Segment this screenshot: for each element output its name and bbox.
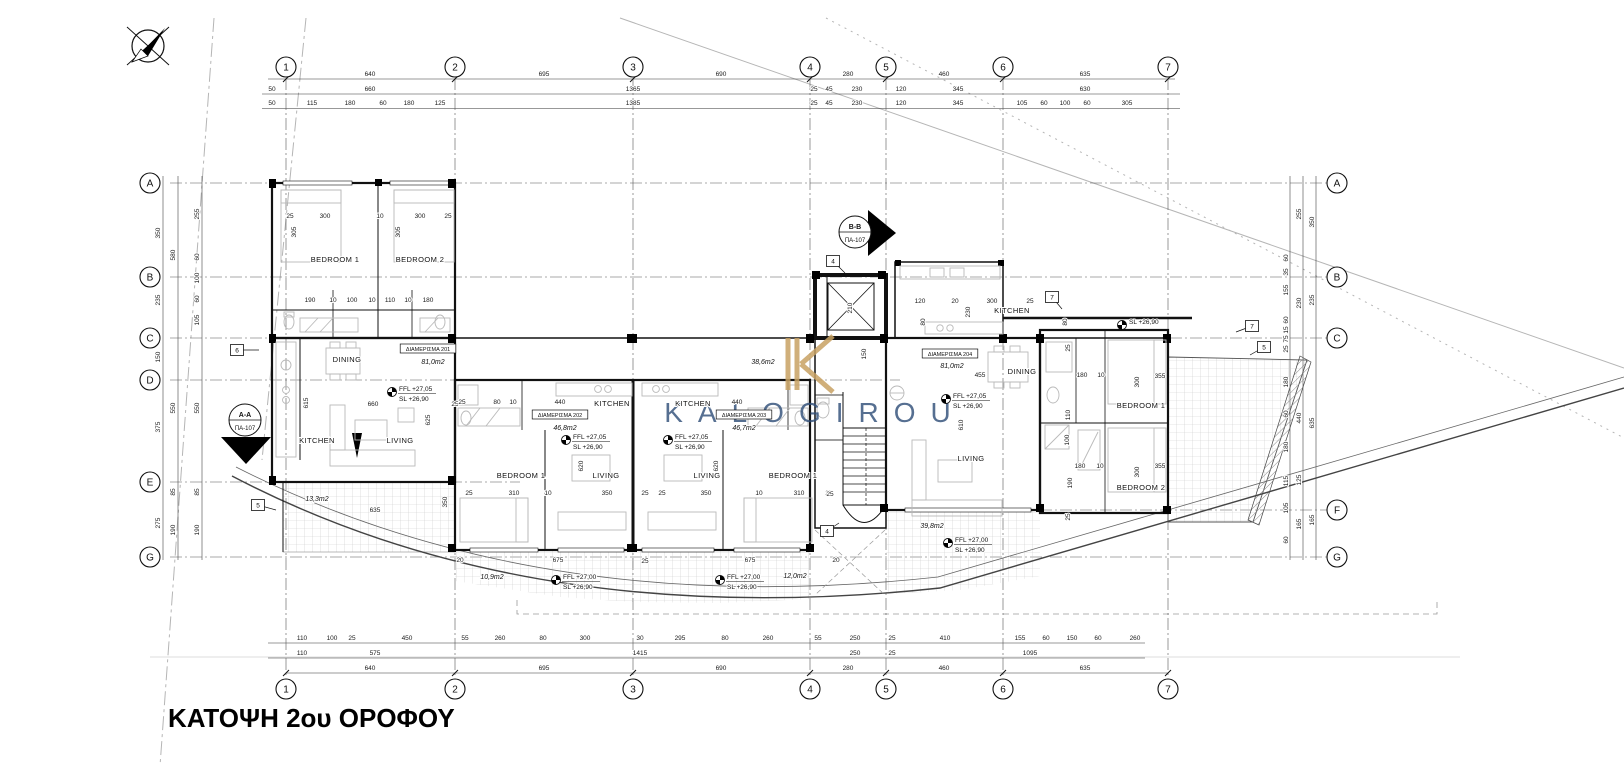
dim-label: 305 bbox=[1122, 100, 1133, 107]
level-symbol-icon bbox=[946, 395, 951, 400]
dim-label: 100 bbox=[1060, 100, 1071, 107]
dim-label: 110 bbox=[297, 650, 308, 657]
dim-label: 125 bbox=[1296, 474, 1303, 485]
dim-label: 410 bbox=[940, 635, 951, 642]
dim-label: 260 bbox=[763, 635, 774, 642]
floor-plan-canvas: 11223344556677ABCDEGABCFG bbox=[0, 0, 1624, 766]
level-text: SL +26,90 bbox=[573, 444, 603, 451]
dim-label: 20 bbox=[832, 557, 840, 564]
dim-label: 25 bbox=[1283, 345, 1290, 353]
dim-label: 45 bbox=[825, 86, 833, 93]
dim-label: 660 bbox=[365, 86, 376, 93]
dim-label: 120 bbox=[915, 298, 926, 305]
drawing-title: ΚΑΤΟΨΗ 2ου ΟΡΟΦΟΥ bbox=[168, 703, 455, 733]
dim-label: 85 bbox=[194, 488, 201, 496]
dim-label: 25 bbox=[348, 635, 356, 642]
dim-label: 180 bbox=[1283, 376, 1290, 387]
dim-label: 230 bbox=[965, 306, 972, 317]
level-text: FFL +27,00 bbox=[563, 574, 597, 581]
dim-label: 345 bbox=[953, 100, 964, 107]
dim-label: 690 bbox=[716, 71, 727, 78]
dim-label: 120 bbox=[896, 86, 907, 93]
dim-label: 80 bbox=[539, 635, 547, 642]
dim-label: 60 bbox=[194, 295, 201, 303]
dim-label: 640 bbox=[365, 665, 376, 672]
dim-label: 50 bbox=[268, 86, 276, 93]
level-text: SL +26,90 bbox=[1129, 319, 1159, 326]
room-label: BEDROOM 1 bbox=[497, 471, 546, 480]
dim-label: 690 bbox=[716, 665, 727, 672]
dim-label: 20 bbox=[951, 298, 959, 305]
dim-label: 575 bbox=[370, 650, 381, 657]
level-text: SL +26,90 bbox=[675, 444, 705, 451]
dim-label: 100 bbox=[1064, 434, 1071, 445]
level-symbol-icon bbox=[664, 440, 669, 445]
grid-bubble-label: 2 bbox=[452, 685, 458, 696]
dim-label: 110 bbox=[1065, 409, 1072, 420]
dim-label: 250 bbox=[850, 650, 861, 657]
dim-label: 255 bbox=[194, 208, 201, 219]
keynote-number: 6 bbox=[235, 348, 239, 355]
dim-label: 10 bbox=[329, 297, 337, 304]
dim-label: 355 bbox=[1155, 373, 1166, 380]
dim-label: 355 bbox=[1155, 463, 1166, 470]
keynote-number: 5 bbox=[1262, 345, 1266, 352]
dim-label: 455 bbox=[975, 372, 986, 379]
north-arrow-icon bbox=[127, 27, 169, 65]
dim-label: 260 bbox=[495, 635, 506, 642]
dim-label: 10 bbox=[368, 297, 376, 304]
room-label: LIVING bbox=[694, 471, 721, 480]
dim-label: 350 bbox=[155, 227, 162, 238]
dim-label: 450 bbox=[402, 635, 413, 642]
level-symbol-icon bbox=[1118, 325, 1123, 330]
dim-label: 55 bbox=[814, 635, 822, 642]
dim-label: 110 bbox=[385, 297, 396, 304]
dim-label: 235 bbox=[155, 294, 162, 305]
dim-label: 350 bbox=[1309, 216, 1316, 227]
dim-label: 460 bbox=[939, 71, 950, 78]
room-label: DINING bbox=[1008, 367, 1037, 376]
dim-label: 350 bbox=[701, 490, 712, 497]
level-symbol-icon bbox=[392, 388, 397, 393]
dim-label: 10 bbox=[544, 490, 552, 497]
dim-label: 165 bbox=[1309, 514, 1316, 525]
dim-label: 85 bbox=[170, 488, 177, 496]
dim-label: 630 bbox=[1080, 86, 1091, 93]
dim-label: 695 bbox=[539, 665, 550, 672]
dim-label: 180 bbox=[1075, 463, 1086, 470]
room-label: KITCHEN bbox=[594, 399, 630, 408]
dim-label: 640 bbox=[365, 71, 376, 78]
dim-label: 60 bbox=[194, 253, 201, 261]
grid-bubble-label: 1 bbox=[283, 685, 289, 696]
keynote-number: 7 bbox=[1250, 324, 1254, 331]
dim-label: 100 bbox=[347, 297, 358, 304]
level-text: FFL +27,00 bbox=[727, 574, 761, 581]
dim-label: 300 bbox=[320, 213, 331, 220]
dim-label: 15 bbox=[1283, 326, 1290, 334]
apartment-area: 81,0m2 bbox=[421, 359, 444, 366]
dim-label: 155 bbox=[1015, 635, 1026, 642]
svg-text:A-A: A-A bbox=[239, 412, 251, 419]
dim-label: 305 bbox=[395, 226, 402, 237]
dim-label: 180 bbox=[423, 297, 434, 304]
dim-label: 260 bbox=[1130, 635, 1141, 642]
grid-bubble-label: A bbox=[1334, 179, 1341, 190]
dim-label: 120 bbox=[896, 100, 907, 107]
dim-label: 610 bbox=[958, 419, 965, 430]
grid-bubble-label: 2 bbox=[452, 63, 458, 74]
dim-label: 25 bbox=[641, 558, 649, 565]
level-text: SL +26,90 bbox=[563, 584, 593, 591]
dim-label: 230 bbox=[852, 100, 863, 107]
dim-label: 25 bbox=[888, 635, 896, 642]
room-label: BEDROOM 2 bbox=[1117, 483, 1166, 492]
section-marker-bb: B-B ΠΑ-107 bbox=[839, 210, 896, 256]
dim-label: 310 bbox=[794, 490, 805, 497]
dim-label: 310 bbox=[509, 490, 520, 497]
dim-label: 10 bbox=[755, 490, 763, 497]
grid-bubble-label: 7 bbox=[1165, 63, 1171, 74]
area-label: 38,6m2 bbox=[751, 359, 774, 366]
dim-label: 105 bbox=[194, 314, 201, 325]
grid-bubble-label: B bbox=[147, 273, 154, 284]
dim-label: 620 bbox=[713, 460, 720, 471]
dim-label: 350 bbox=[442, 496, 449, 507]
dim-label: 295 bbox=[675, 635, 686, 642]
dim-label: 30 bbox=[636, 635, 644, 642]
dim-label: 275 bbox=[155, 517, 162, 528]
dim-label: 190 bbox=[170, 524, 177, 535]
area-label: 10,9m2 bbox=[480, 574, 503, 581]
svg-text:B-B: B-B bbox=[849, 224, 861, 231]
dim-label: 80 bbox=[1062, 318, 1069, 326]
dim-label: 280 bbox=[843, 71, 854, 78]
dim-label: 60 bbox=[1283, 410, 1290, 418]
dim-label: 675 bbox=[553, 557, 564, 564]
dim-label: 60 bbox=[1040, 100, 1048, 107]
svg-text:ΠΑ-107: ΠΑ-107 bbox=[845, 238, 866, 244]
level-text: SL +26,90 bbox=[955, 547, 985, 554]
grid-bubble-label: 4 bbox=[807, 685, 813, 696]
floor-plan-drawing: 11223344556677ABCDEGABCFG bbox=[0, 0, 1624, 766]
dim-label: 350 bbox=[602, 490, 613, 497]
room-label: LIVING bbox=[958, 454, 985, 463]
dim-label: 440 bbox=[1296, 412, 1303, 423]
keynote-number: 5 bbox=[256, 503, 260, 510]
dim-label: 300 bbox=[987, 298, 998, 305]
dim-label: 440 bbox=[555, 399, 566, 406]
dim-label: 60 bbox=[379, 100, 387, 107]
dim-label: 75 bbox=[1283, 335, 1290, 343]
grid-bubble-label: D bbox=[146, 376, 153, 387]
level-text: SL +26,90 bbox=[727, 584, 757, 591]
room-label: KITCHEN bbox=[675, 399, 711, 408]
dim-label: 235 bbox=[1309, 294, 1316, 305]
dim-label: 115 bbox=[307, 100, 318, 107]
dim-label: 695 bbox=[539, 71, 550, 78]
apartment-area: 81,0m2 bbox=[940, 363, 963, 370]
dim-label: 180 bbox=[404, 100, 415, 107]
dim-label: 115 bbox=[1283, 475, 1290, 486]
dim-label: 110 bbox=[297, 635, 308, 642]
dim-label: 25 bbox=[458, 399, 466, 406]
dim-label: 20 bbox=[456, 557, 464, 564]
dim-label: 210 bbox=[847, 302, 854, 313]
apartment-tag: ΔΙΑΜΕΡΙΣΜΑ 202 bbox=[538, 413, 582, 419]
grid-bubble-label: E bbox=[147, 478, 154, 489]
dim-label: 440 bbox=[732, 399, 743, 406]
level-text: FFL +27,05 bbox=[573, 434, 607, 441]
dim-label: 50 bbox=[268, 100, 276, 107]
area-label: 13,3m2 bbox=[305, 496, 328, 503]
dim-label: 255 bbox=[1296, 208, 1303, 219]
level-symbol-icon bbox=[1122, 321, 1127, 326]
area-label: 12,0m2 bbox=[783, 573, 806, 580]
dim-label: 150 bbox=[861, 348, 868, 359]
grid-bubble-label: C bbox=[1333, 334, 1340, 345]
dim-label: 155 bbox=[1283, 284, 1290, 295]
dim-label: 180 bbox=[1283, 441, 1290, 452]
dim-label: 190 bbox=[305, 297, 316, 304]
dim-label: 80 bbox=[721, 635, 729, 642]
dim-label: 635 bbox=[1309, 417, 1316, 428]
dim-label: 625 bbox=[425, 414, 432, 425]
dim-label: 580 bbox=[170, 249, 177, 260]
dim-label: 10 bbox=[1096, 463, 1104, 470]
level-text: FFL +27,00 bbox=[955, 537, 989, 544]
dim-label: 150 bbox=[1067, 635, 1078, 642]
level-symbol-icon bbox=[562, 440, 567, 445]
dim-label: 300 bbox=[415, 213, 426, 220]
level-symbol-icon bbox=[668, 436, 673, 441]
room-label: BEDROOM 1 bbox=[1117, 401, 1166, 410]
dim-label: 1095 bbox=[1023, 650, 1038, 657]
dim-label: 25 bbox=[444, 213, 452, 220]
dim-label: 150 bbox=[155, 351, 162, 362]
dim-label: 60 bbox=[1094, 635, 1102, 642]
grid-bubble-label: B bbox=[1334, 273, 1341, 284]
dim-label: 675 bbox=[745, 557, 756, 564]
dim-label: 25 bbox=[888, 650, 896, 657]
grid-bubble-label: 3 bbox=[630, 63, 636, 74]
dim-label: 190 bbox=[194, 524, 201, 535]
dim-label: 165 bbox=[1296, 518, 1303, 529]
dim-label: 635 bbox=[1080, 665, 1091, 672]
grid-bubble-label: 6 bbox=[1000, 685, 1006, 696]
keynote-number: 4 bbox=[831, 259, 835, 266]
dim-label: 460 bbox=[939, 665, 950, 672]
dim-label: 180 bbox=[345, 100, 356, 107]
dim-label: 25 bbox=[465, 490, 473, 497]
dim-label: 280 bbox=[843, 665, 854, 672]
dim-label: 660 bbox=[368, 401, 379, 408]
dim-label: 1385 bbox=[626, 100, 641, 107]
dim-label: 45 bbox=[825, 100, 833, 107]
level-symbol-icon bbox=[566, 436, 571, 441]
dim-label: 25 bbox=[810, 100, 818, 107]
grid-bubble-label: 1 bbox=[283, 63, 289, 74]
dim-label: 180 bbox=[1077, 372, 1088, 379]
dim-label: 60 bbox=[1283, 254, 1290, 262]
dim-label: 105 bbox=[1017, 100, 1028, 107]
grid-bubble-label: 5 bbox=[883, 685, 889, 696]
grid-bubble-label: F bbox=[1334, 506, 1340, 517]
dim-label: 35 bbox=[1283, 268, 1290, 276]
keynote-number: 7 bbox=[1050, 295, 1054, 302]
dim-label: 25 bbox=[641, 490, 649, 497]
level-text: SL +26,90 bbox=[399, 396, 429, 403]
room-label: KITCHEN bbox=[994, 306, 1030, 315]
dim-label: 60 bbox=[1083, 100, 1091, 107]
dim-label: 100 bbox=[194, 272, 201, 283]
dim-label: 10 bbox=[1097, 372, 1105, 379]
dim-label: 550 bbox=[194, 402, 201, 413]
section-marker-aa: A-A ΠΑ-107 bbox=[221, 404, 271, 464]
dim-label: 10 bbox=[404, 297, 412, 304]
grid-bubble-label: 4 bbox=[807, 63, 813, 74]
dim-label: 25 bbox=[286, 213, 294, 220]
dim-label: 25 bbox=[826, 491, 834, 498]
dim-label: 635 bbox=[1080, 71, 1091, 78]
dim-label: 60 bbox=[1283, 316, 1290, 324]
level-text: FFL +27,05 bbox=[399, 386, 433, 393]
keynote-number: 4 bbox=[825, 529, 829, 536]
room-label: KITCHEN bbox=[299, 436, 335, 445]
dim-label: 25 bbox=[658, 490, 666, 497]
dim-label: 60 bbox=[1283, 536, 1290, 544]
level-text: FFL +27,05 bbox=[953, 393, 987, 400]
grid-bubble-label: A bbox=[147, 179, 154, 190]
dim-label: 635 bbox=[370, 507, 381, 514]
svg-text:ΠΑ-107: ΠΑ-107 bbox=[235, 426, 256, 432]
dim-label: 190 bbox=[1067, 477, 1074, 488]
dim-label: 25 bbox=[810, 86, 818, 93]
area-label: 39,8m2 bbox=[920, 523, 943, 530]
apartment-tag: ΔΙΑΜΕΡΙΣΜΑ 203 bbox=[722, 413, 766, 419]
apartment-tag: ΔΙΑΜΕΡΙΣΜΑ 204 bbox=[928, 352, 972, 358]
dim-label: 230 bbox=[1296, 297, 1303, 308]
dim-label: 230 bbox=[852, 86, 863, 93]
grid-bubble-label: G bbox=[1333, 553, 1341, 564]
room-label: LIVING bbox=[593, 471, 620, 480]
level-symbol-icon bbox=[388, 392, 393, 397]
dim-label: 1365 bbox=[626, 86, 641, 93]
dim-label: 55 bbox=[461, 635, 469, 642]
dim-label: 1415 bbox=[633, 650, 648, 657]
grid-bubble-label: 6 bbox=[1000, 63, 1006, 74]
dim-label: 80 bbox=[493, 399, 501, 406]
dim-label: 10 bbox=[376, 213, 384, 220]
grid-bubble-label: 3 bbox=[630, 685, 636, 696]
dim-label: 615 bbox=[303, 397, 310, 408]
room-label: BEDROOM 2 bbox=[396, 255, 445, 264]
dim-label: 105 bbox=[1283, 502, 1290, 513]
apartment-area: 46,8m2 bbox=[553, 425, 576, 432]
dim-label: 250 bbox=[850, 635, 861, 642]
apartment-area: 46,7m2 bbox=[732, 425, 755, 432]
dim-label: 345 bbox=[953, 86, 964, 93]
room-labels: BEDROOM 1BEDROOM 2DININGKITCHENLIVINGKIT… bbox=[299, 255, 1165, 492]
dim-label: 25 bbox=[1026, 298, 1034, 305]
dim-label: 300 bbox=[580, 635, 591, 642]
dim-label: 25 bbox=[1065, 344, 1072, 352]
grid-bubble-label: G bbox=[146, 553, 154, 564]
dim-label: 300 bbox=[1134, 376, 1141, 387]
dim-label: 25 bbox=[1065, 513, 1072, 521]
room-label: BEDROOM 1 bbox=[311, 255, 360, 264]
dim-label: 620 bbox=[578, 460, 585, 471]
grid-bubble-label: C bbox=[146, 334, 153, 345]
room-label: DINING bbox=[333, 355, 362, 364]
dim-label: 125 bbox=[435, 100, 446, 107]
grid-bubble-label: 5 bbox=[883, 63, 889, 74]
dim-label: 375 bbox=[155, 421, 162, 432]
room-label: LIVING bbox=[387, 436, 414, 445]
dim-label: 550 bbox=[170, 402, 177, 413]
level-text: FFL +27,05 bbox=[675, 434, 709, 441]
apartment-tag: ΔΙΑΜΕΡΙΣΜΑ 201 bbox=[406, 347, 450, 353]
room-label: BEDROOM 1 bbox=[769, 471, 818, 480]
grid-bubble-label: 7 bbox=[1165, 685, 1171, 696]
level-text: SL +26,90 bbox=[953, 403, 983, 410]
dim-label: 80 bbox=[920, 318, 927, 326]
dim-label: 305 bbox=[291, 226, 298, 237]
dim-label: 100 bbox=[327, 635, 338, 642]
dim-label: 10 bbox=[509, 399, 517, 406]
dim-label: 300 bbox=[1134, 466, 1141, 477]
dim-label: 60 bbox=[1042, 635, 1050, 642]
